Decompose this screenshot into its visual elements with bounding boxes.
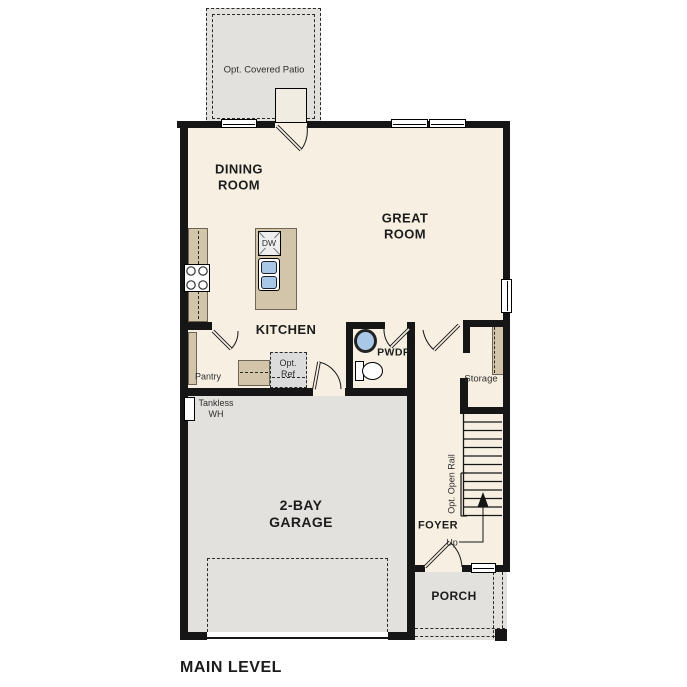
garage-label: 2-BAY GARAGE — [269, 497, 333, 531]
wall-pantry-stub — [180, 322, 212, 330]
powder-room-label: PWDR — [377, 347, 411, 360]
wall-garage-top-right — [345, 388, 408, 396]
storage-label: Storage — [464, 373, 497, 384]
patio-door-panel — [275, 88, 307, 123]
foyer-label: FOYER — [418, 519, 458, 532]
wall-foyer-bottom-left — [408, 565, 425, 572]
window-porch — [471, 563, 496, 573]
wall-right — [503, 121, 510, 572]
garage-door-dashed-outline — [207, 558, 388, 632]
kitchen-sink-basin-bottom — [261, 276, 277, 289]
dishwasher-label: DW — [261, 238, 277, 248]
plan-title: MAIN LEVEL — [180, 658, 282, 677]
wall-garage-bottom-left — [180, 632, 207, 640]
porch-label: PORCH — [431, 589, 476, 603]
wall-storage-left-upper — [463, 320, 470, 353]
open-rail-label: Opt. Open Rail — [447, 454, 458, 514]
wall-powder-left — [346, 322, 353, 396]
porch-post — [495, 629, 507, 641]
dining-room-label: DINING ROOM — [215, 161, 263, 192]
floor-plan-canvas: Opt. Covered Patio DINING ROOM GREAT ROO… — [0, 0, 687, 687]
kitchen-label: KITCHEN — [256, 322, 317, 338]
pantry-label: Pantry — [195, 372, 221, 383]
window-great-left — [391, 119, 428, 128]
wall-foyer-garage — [407, 322, 415, 640]
mud-counter-dashed-line — [240, 372, 268, 373]
wall-left — [180, 121, 188, 640]
powder-sink-symbol — [354, 329, 377, 353]
front-door-opening — [425, 565, 462, 572]
window-great-side — [501, 279, 512, 313]
wall-storage-top — [463, 320, 510, 327]
porch-dashed-edge-bottom-outer — [415, 636, 505, 637]
wall-garage-bottom-right — [388, 632, 415, 640]
storage-shelf-dashed-line — [494, 327, 495, 373]
wall-storage-bottom — [460, 407, 510, 414]
patio-label: Opt. Covered Patio — [224, 64, 305, 75]
kitchen-sink-basin-top — [261, 261, 277, 274]
porch-dashed-edge-bottom-inner — [415, 628, 505, 629]
great-room-label: GREAT ROOM — [382, 210, 429, 241]
wall-garage-top-left — [180, 388, 313, 396]
up-label: Up — [446, 538, 458, 549]
optional-ref-label: Opt. Ref — [279, 358, 296, 380]
mud-counter — [238, 360, 270, 386]
garage-door-line — [207, 637, 388, 639]
tankless-water-heater-symbol — [184, 397, 195, 421]
stove-symbol — [184, 264, 210, 292]
toilet-bowl-symbol — [362, 362, 383, 380]
window-great-right — [429, 119, 466, 128]
window-dining — [221, 119, 257, 128]
tankless-wh-label: Tankless WH — [198, 398, 233, 420]
